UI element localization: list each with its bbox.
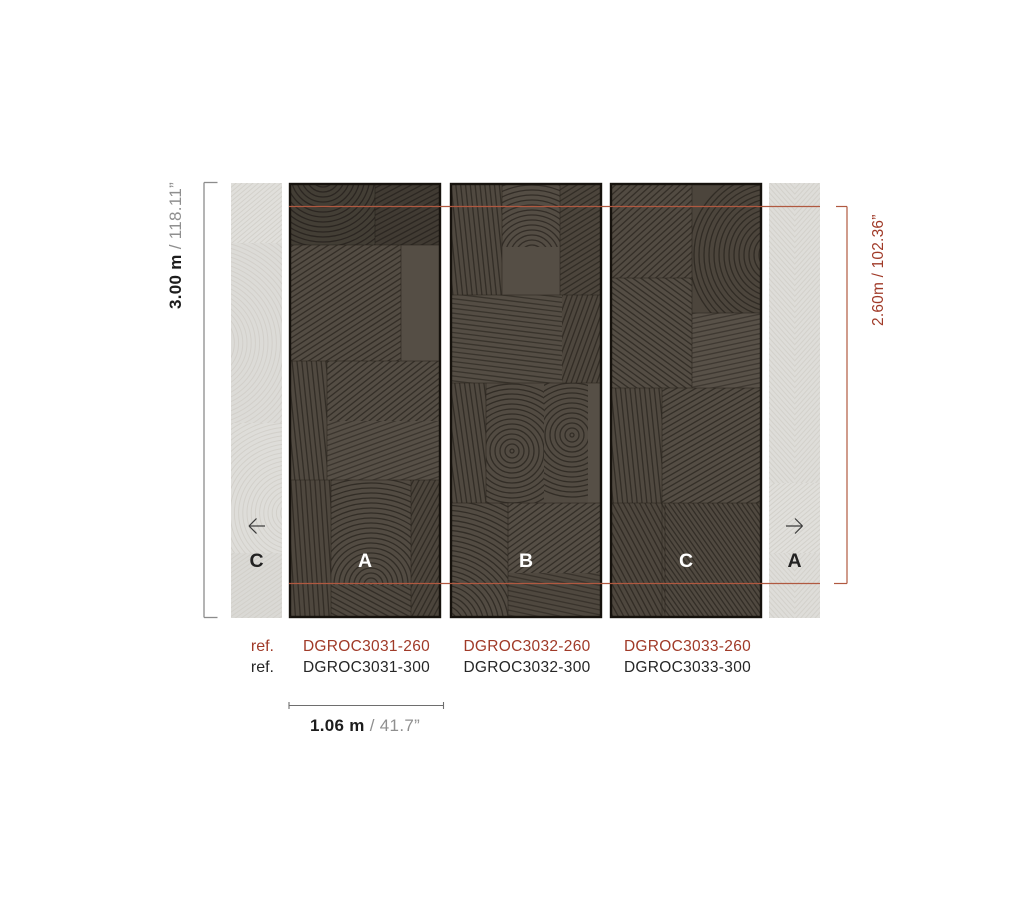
svg-text:3.00 m / 118.11”: 3.00 m / 118.11”: [166, 182, 185, 309]
svg-text:DGROC3032-260: DGROC3032-260: [463, 638, 590, 655]
svg-text:DGROC3032-300: DGROC3032-300: [463, 659, 590, 676]
svg-text:DGROC3033-300: DGROC3033-300: [624, 659, 751, 676]
svg-text:A: A: [358, 550, 372, 572]
svg-text:DGROC3031-300: DGROC3031-300: [303, 659, 430, 676]
svg-text:ref.: ref.: [251, 659, 274, 676]
svg-text:C: C: [679, 550, 693, 572]
svg-text:ref.: ref.: [251, 638, 274, 655]
svg-text:1.06 m / 41.7”: 1.06 m / 41.7”: [310, 716, 420, 735]
svg-text:B: B: [519, 550, 533, 572]
svg-text:A: A: [787, 550, 801, 572]
svg-text:2.60m / 102.36”: 2.60m / 102.36”: [870, 214, 887, 326]
svg-text:C: C: [249, 550, 263, 572]
svg-text:DGROC3031-260: DGROC3031-260: [303, 638, 430, 655]
svg-text:DGROC3033-260: DGROC3033-260: [624, 638, 751, 655]
